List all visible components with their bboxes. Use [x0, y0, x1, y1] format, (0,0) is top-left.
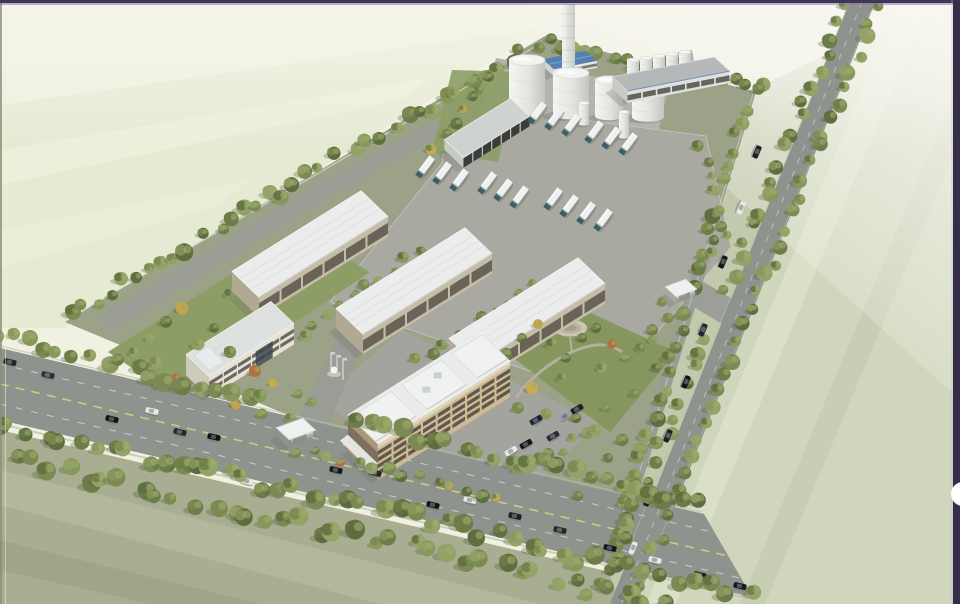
- right-border: [953, 0, 960, 604]
- right-accent-line: [952, 0, 953, 604]
- left-accent-line: [5, 0, 6, 604]
- left-frame-line: [0, 0, 2, 604]
- top-border: [0, 0, 960, 3]
- fountain-sculpture: [331, 367, 338, 374]
- top-border-glow: [0, 3, 960, 5]
- rendering-stage: [0, 0, 960, 604]
- aerial-site-rendering: [0, 0, 960, 604]
